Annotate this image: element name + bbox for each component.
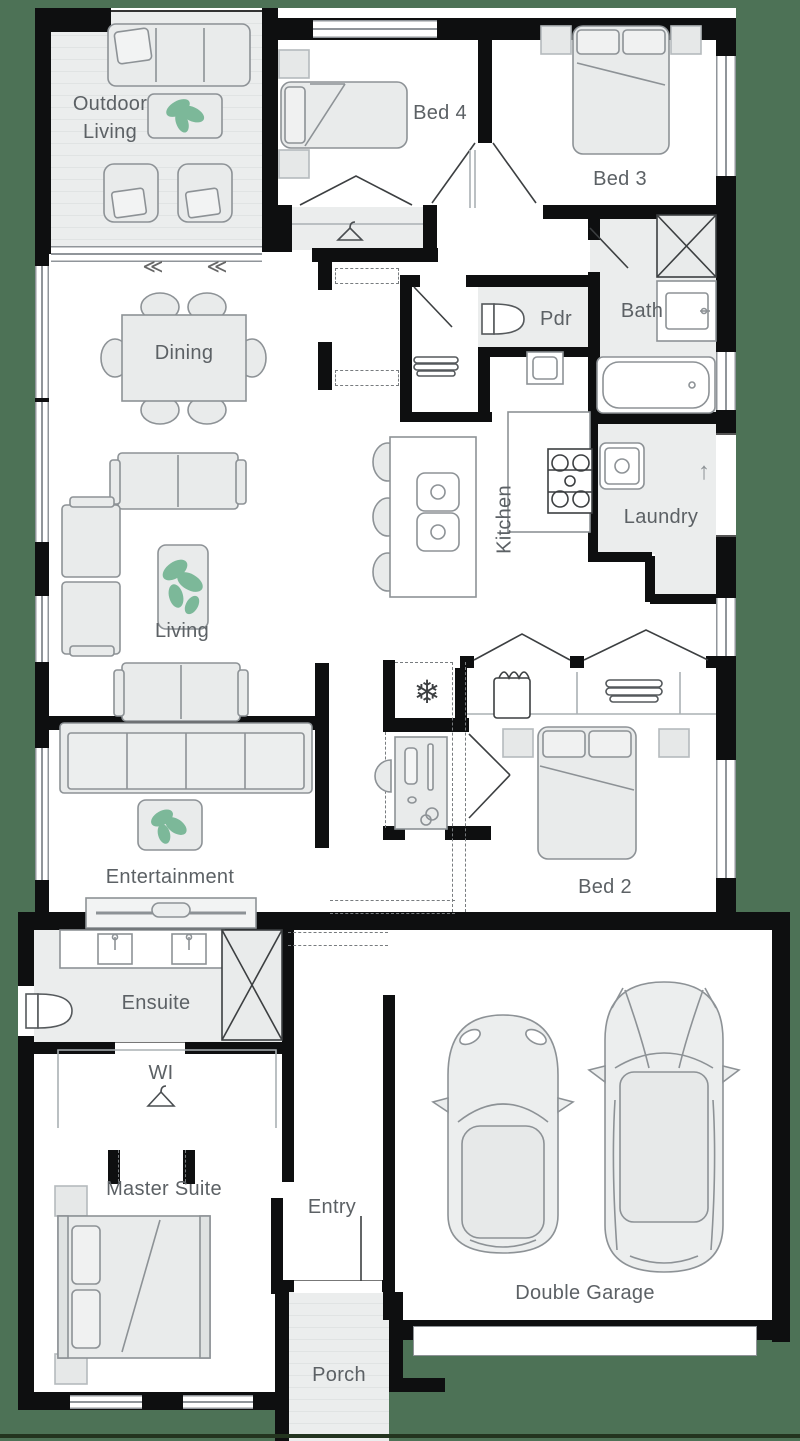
linen-towels-icon [606,680,662,702]
bed3-icon [541,26,701,154]
room-label-kitchen: Kitchen [494,465,517,575]
room-label-wi: WI [136,1062,186,1085]
laundry-sink-icon [600,443,644,489]
bed2-icon [503,727,689,859]
room-label-bed2: Bed 2 [560,876,650,899]
room-label-bed4: Bed 4 [400,102,480,125]
room-label-entry: Entry [300,1196,364,1219]
living-armchair-icon [62,497,120,656]
towel-rail-icon [414,357,458,376]
study-desk-icon [375,737,447,829]
toilet-icon [26,994,72,1028]
floor-plan: ❄ ≪ ≪ ↑ Outdoor Living Bed 4 Bed 3 Pdr B… [0,0,800,1441]
room-label-living: Living [142,620,222,643]
car-icon [589,982,739,1272]
room-label-bed3: Bed 3 [575,168,665,191]
room-label-double-garage: Double Garage [500,1282,670,1305]
exit-arrow-icon: ↑ [692,458,716,486]
room-label-pdr: Pdr [528,308,584,331]
ensuite-vanity-icon [60,930,224,968]
pantry-bag-icon [494,672,530,718]
robe-door-gables [300,176,708,660]
site-boundary-line [0,1434,800,1438]
bathtub-icon [597,357,715,413]
shower-box-icon [222,930,282,1040]
basin-cabinet-icon [527,352,563,384]
entertainment-sofa-icon [60,723,312,793]
cooktop-icon [548,449,592,513]
slide-arrow-icon: ≪ [138,254,168,279]
tv-unit-icon [86,898,256,928]
kitchen-island-icon [373,437,476,597]
toilet-icon [482,304,524,334]
shower-box-icon [657,215,716,277]
room-label-dining: Dining [144,342,224,365]
room-label-bath: Bath [602,300,682,323]
car-icon [433,1015,573,1253]
bed4-icon [279,50,407,178]
room-label-porch: Porch [302,1364,376,1387]
furniture-layer [0,0,800,1441]
master-bed-icon [55,1186,210,1384]
outdoor-armchair-icon [104,164,232,222]
outdoor-sofa-icon [108,24,250,86]
snowflake-icon: ❄ [404,672,450,712]
room-label-ensuite: Ensuite [108,992,204,1015]
room-label-entertainment: Entertainment [70,866,270,889]
room-label-outdoor-living: Outdoor Living [48,90,172,146]
slide-arrow-icon: ≪ [202,254,232,279]
room-label-laundry: Laundry [613,506,709,529]
room-label-master-suite: Master Suite [96,1178,232,1201]
